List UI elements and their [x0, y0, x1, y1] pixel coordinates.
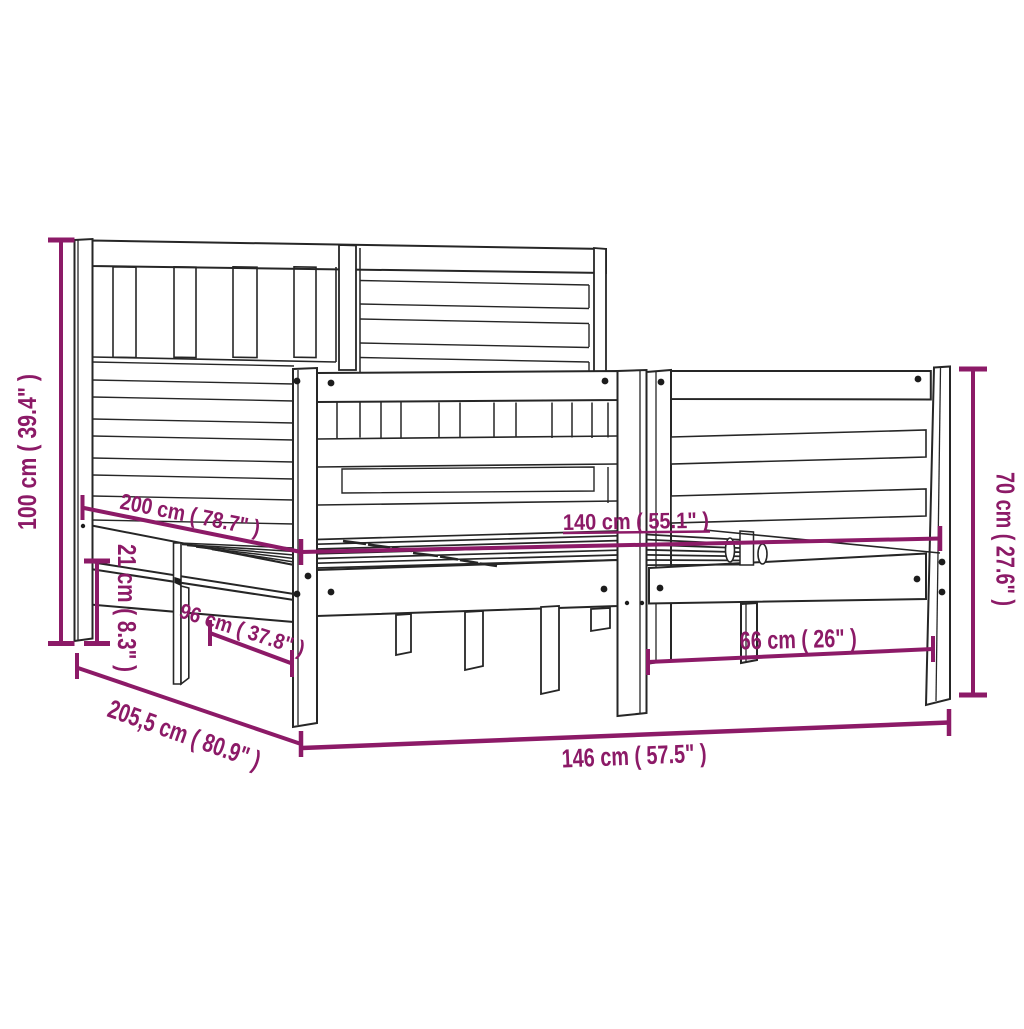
svg-text:100 cm ( 39.4" ): 100 cm ( 39.4" ) — [12, 374, 42, 530]
svg-text:70 cm ( 27.6" ): 70 cm ( 27.6" ) — [991, 472, 1021, 606]
svg-text:146 cm ( 57.5" ): 146 cm ( 57.5" ) — [561, 738, 707, 774]
svg-text:66 cm ( 26" ): 66 cm ( 26" ) — [739, 624, 857, 655]
svg-text:21 cm ( 8.3" ): 21 cm ( 8.3" ) — [112, 544, 142, 672]
